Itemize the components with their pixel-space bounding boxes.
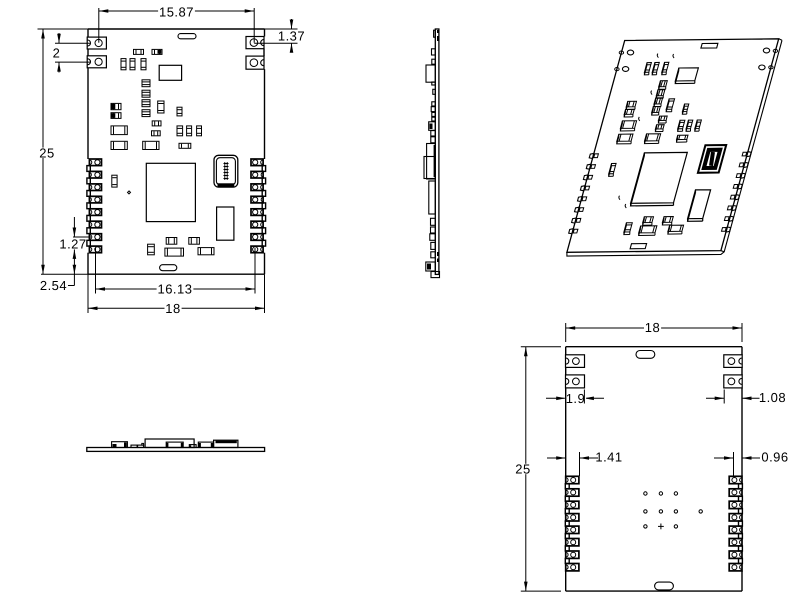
svg-text:25: 25 [39,145,54,160]
svg-text:1.27: 1.27 [59,237,86,252]
svg-text:1.9: 1.9 [566,391,586,406]
svg-text:16.13: 16.13 [157,282,192,297]
svg-text:18: 18 [645,320,660,335]
svg-text:15.87: 15.87 [159,5,194,20]
svg-text:1.41: 1.41 [595,450,622,465]
svg-text:0.96: 0.96 [761,450,788,465]
svg-text:25: 25 [515,462,530,477]
svg-text:2: 2 [53,46,61,61]
svg-text:1.08: 1.08 [759,390,786,405]
svg-text:1.37: 1.37 [278,29,305,44]
svg-text:18: 18 [165,301,180,316]
svg-text:2.54: 2.54 [40,278,67,293]
